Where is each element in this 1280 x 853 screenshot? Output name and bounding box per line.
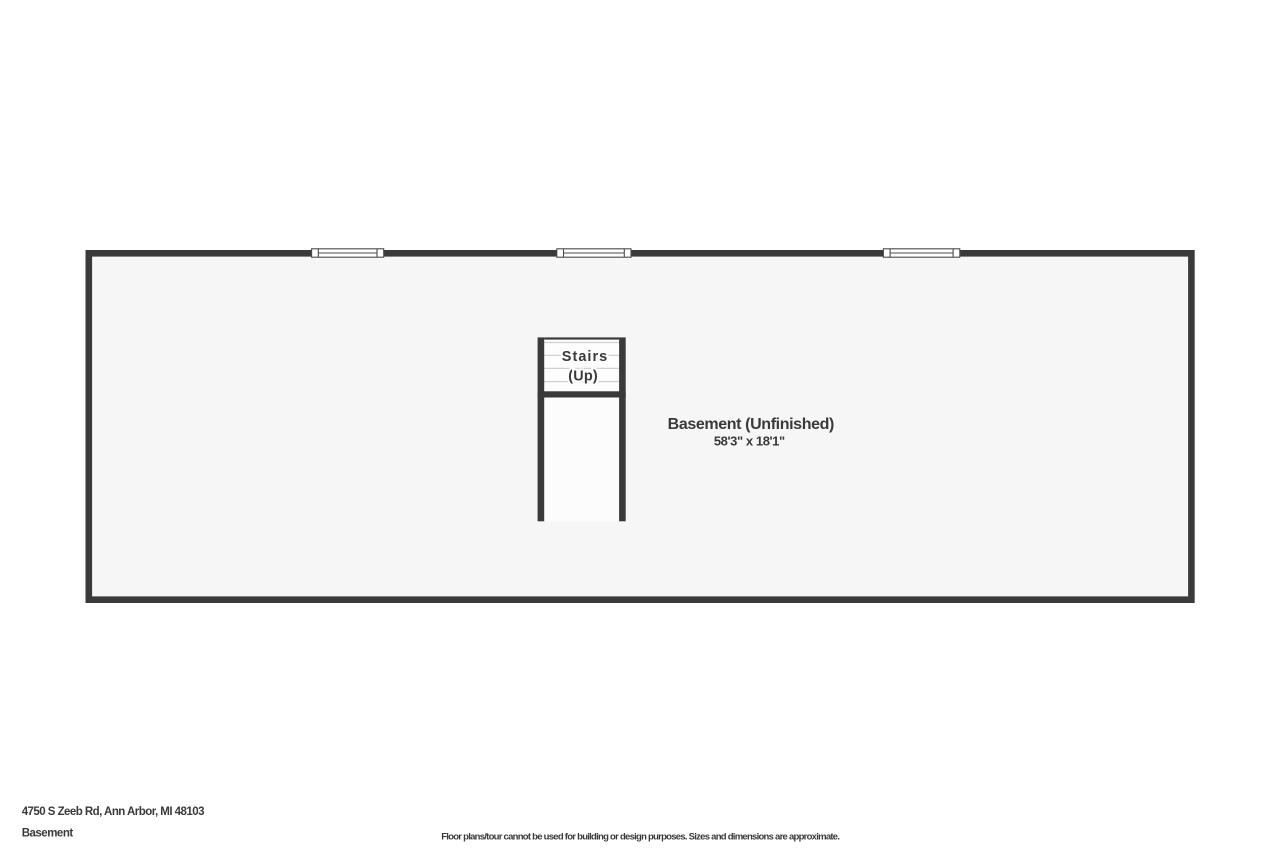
- svg-text:(Up): (Up): [568, 369, 598, 385]
- svg-text:Basement (Unfinished): Basement (Unfinished): [668, 416, 835, 433]
- svg-text:Floor plans/tour cannot be use: Floor plans/tour cannot be used for buil…: [441, 831, 840, 842]
- svg-text:Stairs: Stairs: [562, 349, 608, 365]
- svg-text:4750 S Zeeb Rd, Ann Arbor, MI: 4750 S Zeeb Rd, Ann Arbor, MI 48103: [22, 806, 205, 818]
- svg-text:Basement: Basement: [22, 827, 74, 839]
- svg-text:58'3" x 18'1": 58'3" x 18'1": [714, 434, 785, 449]
